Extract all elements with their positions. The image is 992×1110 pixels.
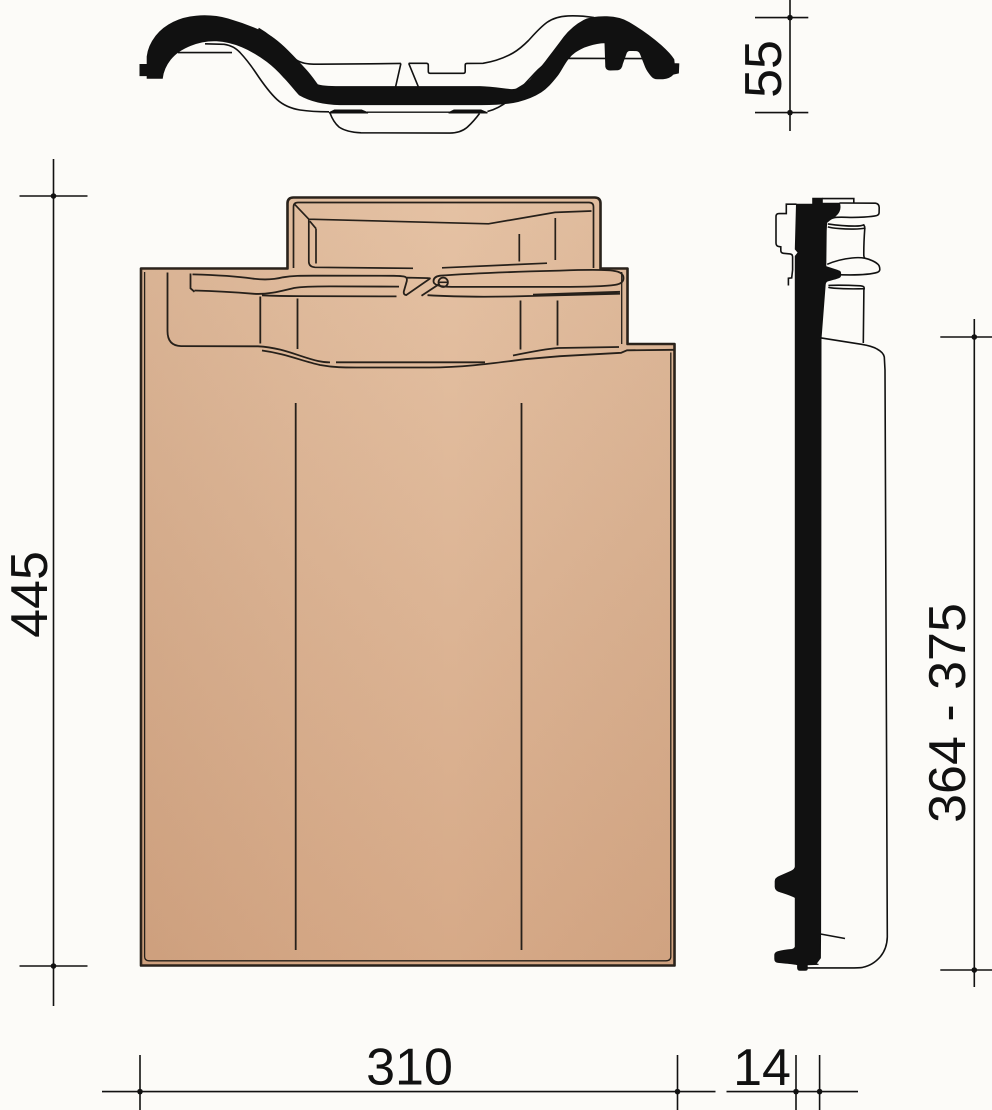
svg-text:14: 14 bbox=[733, 1039, 791, 1097]
svg-text:445: 445 bbox=[1, 551, 59, 638]
svg-text:55: 55 bbox=[735, 40, 793, 98]
svg-text:364 - 375: 364 - 375 bbox=[919, 603, 977, 823]
svg-text:310: 310 bbox=[366, 1039, 453, 1097]
